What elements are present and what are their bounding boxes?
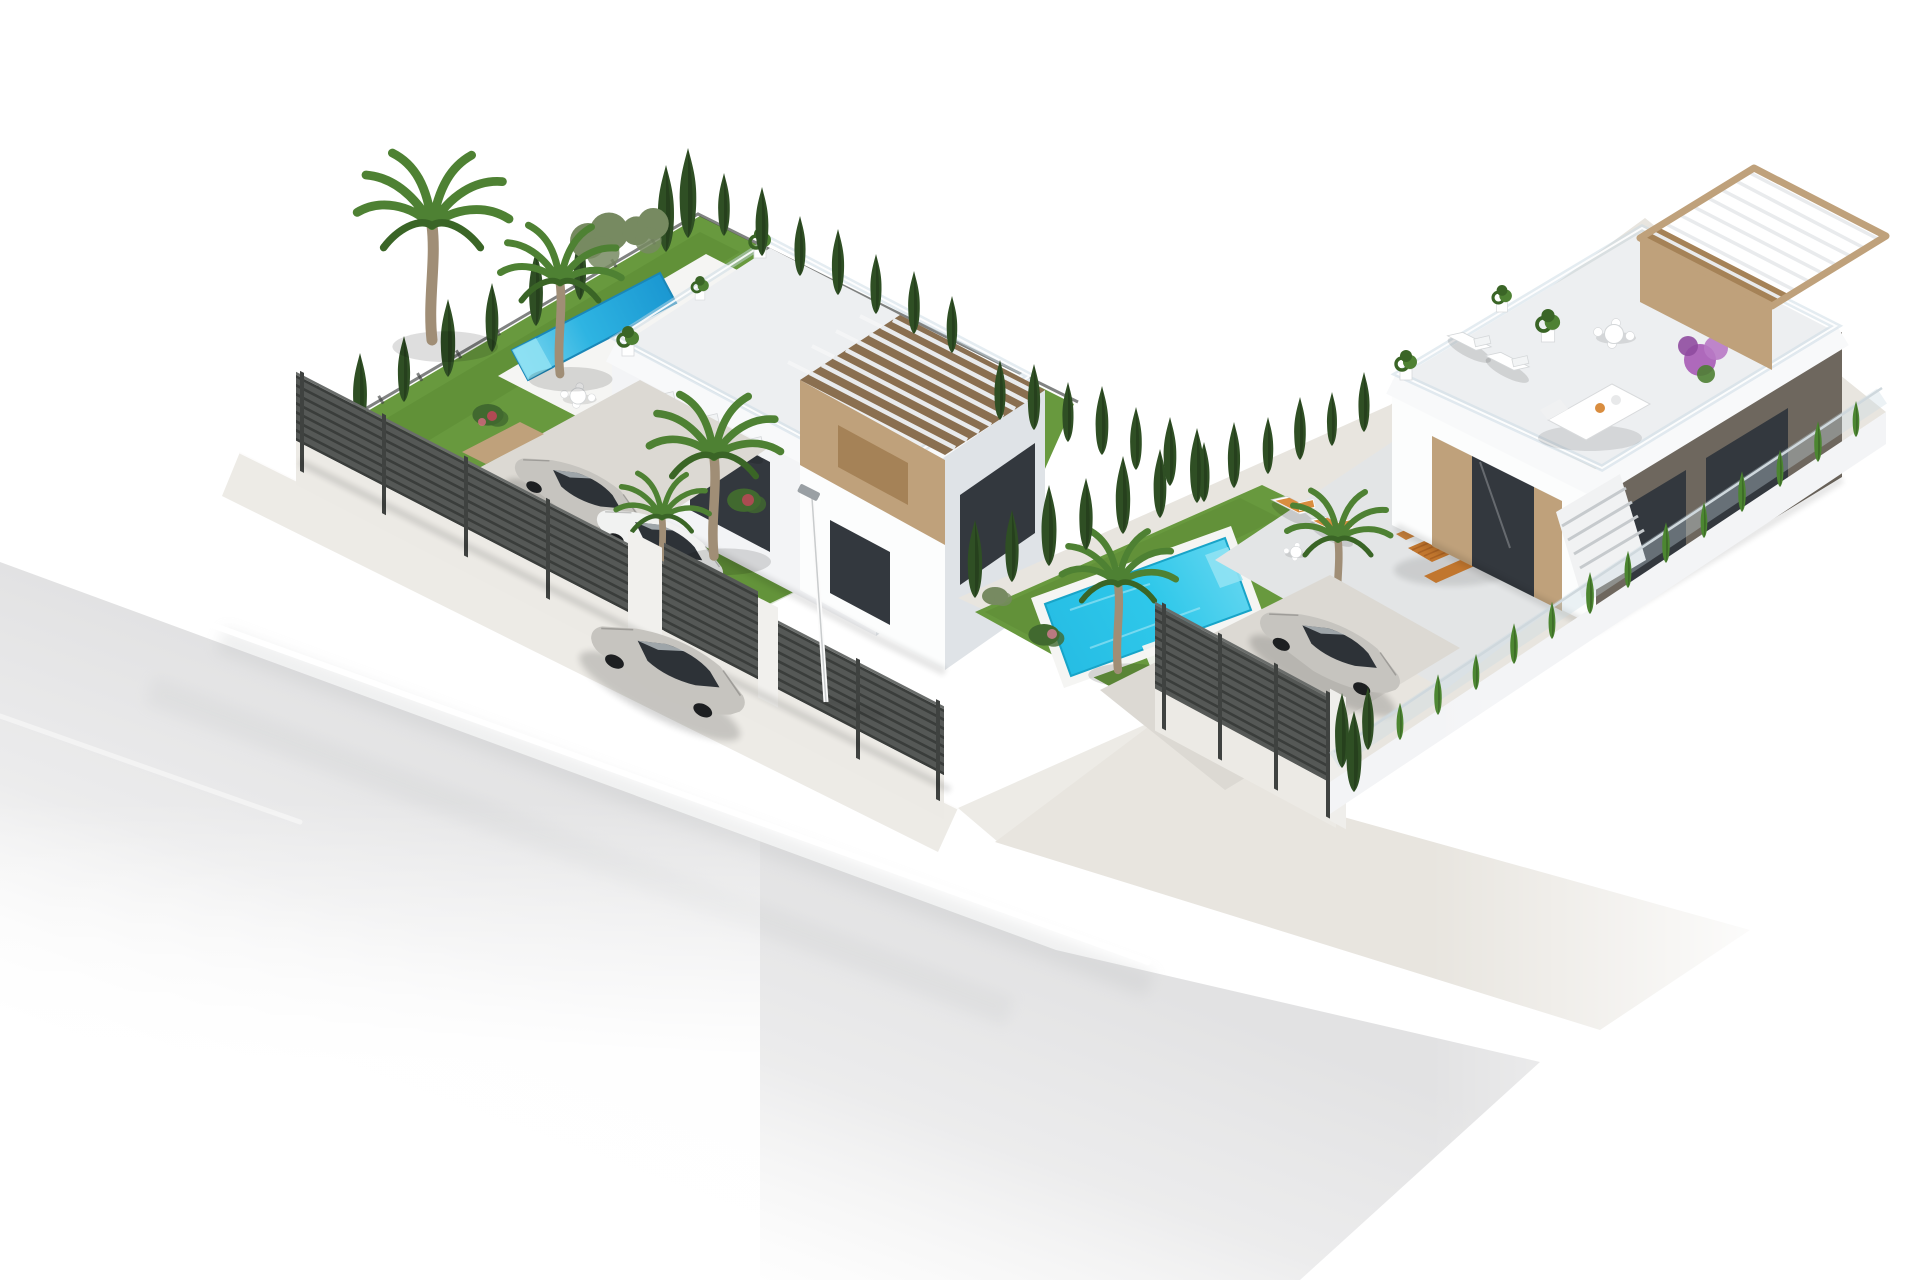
- flowering-bush: [742, 494, 754, 506]
- flowering-bush: [478, 418, 486, 426]
- sofa-cushion: [1595, 403, 1605, 413]
- scene-svg: [0, 0, 1920, 1280]
- sofa-cushion: [1611, 395, 1621, 405]
- render-canvas: [0, 0, 1920, 1280]
- bottom-fade: [0, 800, 760, 1280]
- flowering-bush: [487, 411, 497, 421]
- right-fade: [1430, 700, 1920, 1280]
- flowering-bush: [1047, 629, 1057, 639]
- wood-panel: [1534, 487, 1562, 611]
